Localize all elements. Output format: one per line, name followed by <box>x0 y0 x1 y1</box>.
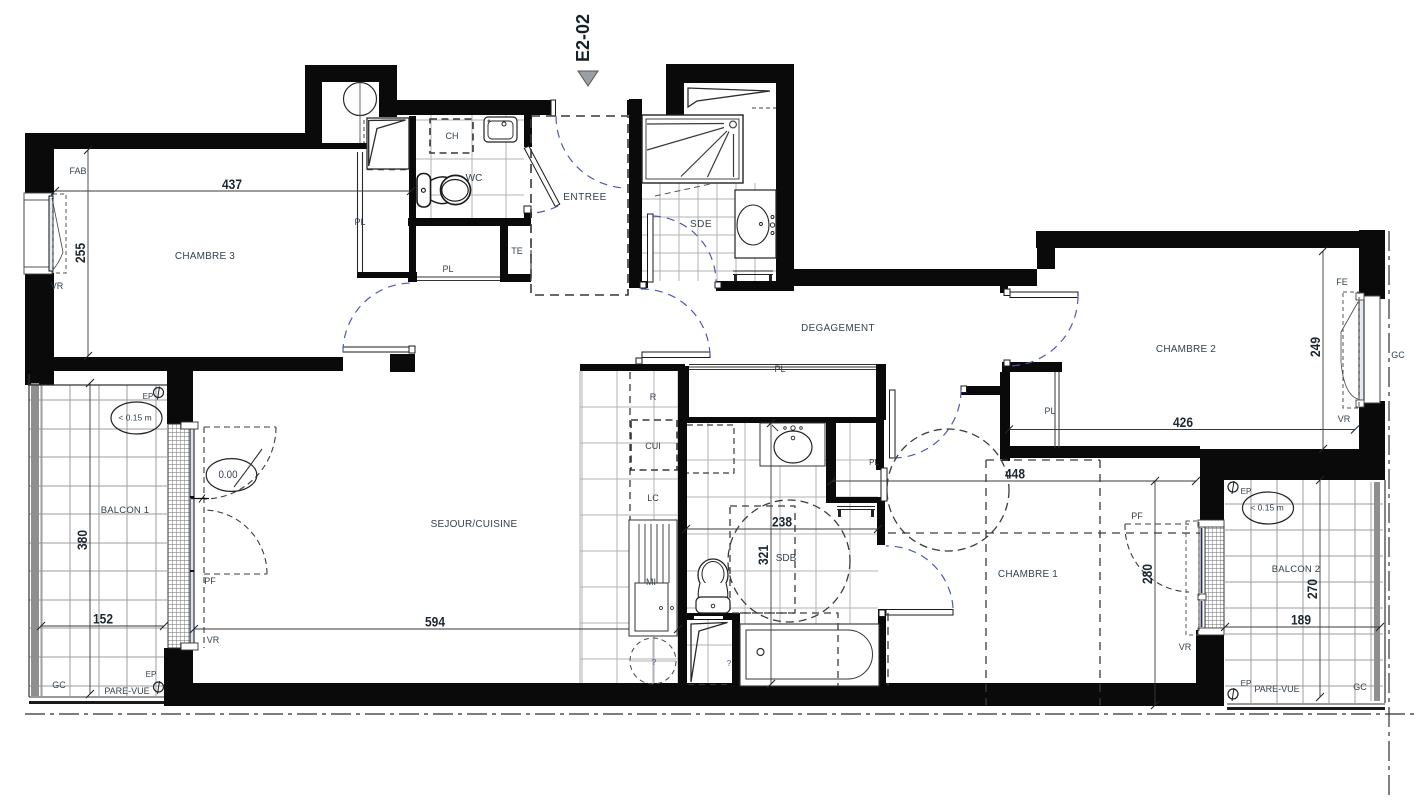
svg-text:FE: FE <box>1336 277 1348 287</box>
svg-text:PF: PF <box>1131 511 1143 521</box>
svg-text:238: 238 <box>772 514 792 530</box>
svg-text:437: 437 <box>222 176 242 192</box>
svg-text:189: 189 <box>1291 612 1311 628</box>
svg-text:FAB: FAB <box>69 166 86 176</box>
svg-text:EP: EP <box>146 670 157 679</box>
svg-text:PL: PL <box>442 264 453 274</box>
svg-text:GC: GC <box>1391 350 1405 360</box>
svg-text:R: R <box>650 392 657 402</box>
svg-text:PL: PL <box>869 458 879 467</box>
svg-text:PF: PF <box>204 576 216 586</box>
svg-text:380: 380 <box>74 530 90 550</box>
svg-text:CH: CH <box>446 131 459 141</box>
svg-text:MI: MI <box>646 577 656 587</box>
svg-text:270: 270 <box>1304 579 1320 599</box>
svg-text:GC: GC <box>52 680 66 690</box>
svg-text:PARE-VUE: PARE-VUE <box>104 686 149 696</box>
svg-text:BALCON 2: BALCON 2 <box>1272 564 1321 575</box>
svg-text:PL: PL <box>1044 406 1055 416</box>
svg-text:CUI: CUI <box>645 441 661 451</box>
svg-text:SDB: SDB <box>776 553 797 564</box>
svg-text:EP: EP <box>143 392 154 401</box>
svg-text:321: 321 <box>755 545 771 565</box>
svg-text:EP: EP <box>1241 487 1252 496</box>
svg-text:< 0.15 m: < 0.15 m <box>118 413 151 423</box>
svg-text:426: 426 <box>1173 414 1193 430</box>
svg-text:SDE: SDE <box>690 219 712 230</box>
svg-text:PL: PL <box>774 364 785 374</box>
svg-text:GC: GC <box>1353 682 1367 692</box>
svg-text:VR: VR <box>51 281 64 291</box>
svg-text:?: ? <box>727 659 732 668</box>
svg-text:CHAMBRE 2: CHAMBRE 2 <box>1156 344 1216 355</box>
svg-text:ENTREE: ENTREE <box>563 192 607 203</box>
svg-text:DEGAGEMENT: DEGAGEMENT <box>801 323 875 334</box>
svg-text:448: 448 <box>1005 466 1025 482</box>
svg-text:CHAMBRE 3: CHAMBRE 3 <box>175 251 235 262</box>
svg-text:VR: VR <box>207 635 220 645</box>
svg-text:255: 255 <box>72 243 88 263</box>
svg-text:VR: VR <box>1179 642 1192 652</box>
svg-text:TE: TE <box>511 246 523 256</box>
svg-text:E2-02: E2-02 <box>573 14 593 62</box>
svg-text:WC: WC <box>466 173 483 184</box>
svg-text:LC: LC <box>647 493 659 503</box>
svg-text:0.00: 0.00 <box>219 469 238 481</box>
svg-text:594: 594 <box>425 614 445 630</box>
svg-text:EP: EP <box>1241 679 1252 688</box>
svg-text:CHAMBRE 1: CHAMBRE 1 <box>998 569 1058 580</box>
svg-text:VR: VR <box>1338 414 1351 424</box>
svg-text:?: ? <box>652 658 657 667</box>
svg-text:< 0.15 m: < 0.15 m <box>1250 503 1283 513</box>
svg-text:SEJOUR/CUISINE: SEJOUR/CUISINE <box>431 519 518 530</box>
svg-text:PL: PL <box>354 217 365 227</box>
svg-text:PARE-VUE: PARE-VUE <box>1254 684 1299 694</box>
svg-text:152: 152 <box>93 611 113 627</box>
svg-text:249: 249 <box>1307 337 1323 357</box>
svg-text:BALCON 1: BALCON 1 <box>101 505 150 516</box>
svg-text:280: 280 <box>1139 564 1155 584</box>
